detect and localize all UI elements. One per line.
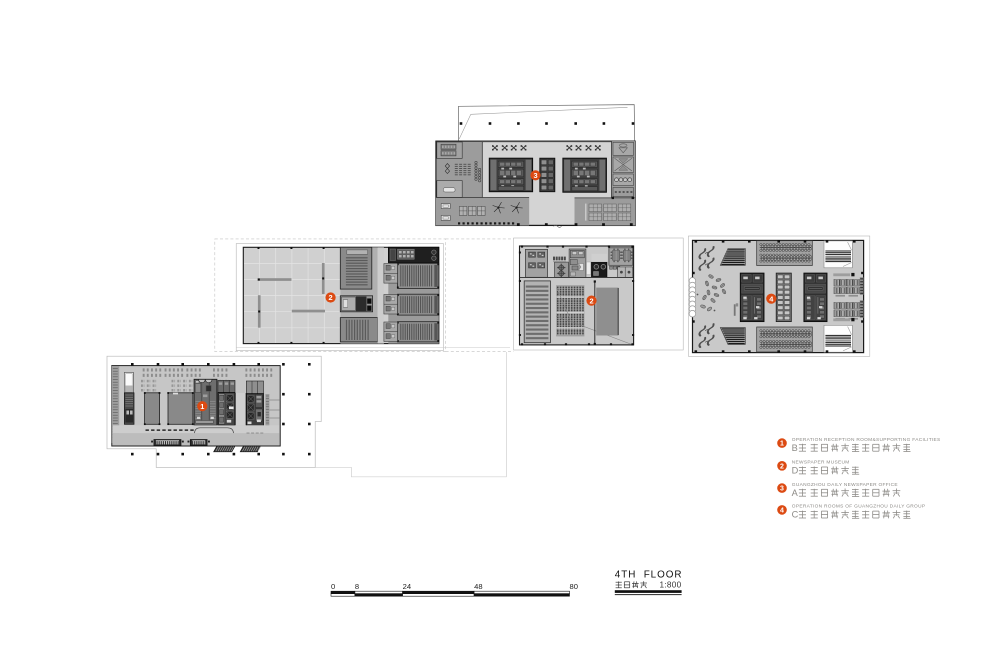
svg-text:1: 1 <box>780 441 784 448</box>
svg-text:2: 2 <box>329 293 333 302</box>
svg-text:3: 3 <box>780 486 784 493</box>
svg-text:2: 2 <box>589 296 593 305</box>
svg-text:NEWSPAPER MUSEUM: NEWSPAPER MUSEUM <box>792 460 850 466</box>
svg-text:4TH FLOOR: 4TH FLOOR <box>615 569 683 580</box>
svg-text:2: 2 <box>780 463 784 470</box>
svg-text:8: 8 <box>355 582 359 591</box>
svg-text:D: D <box>792 466 799 476</box>
svg-text:3: 3 <box>533 171 537 180</box>
svg-text:1: 1 <box>200 402 204 411</box>
svg-text:1:800: 1:800 <box>660 581 682 590</box>
svg-text:80: 80 <box>570 582 578 591</box>
svg-text:4: 4 <box>780 507 784 514</box>
svg-text:A: A <box>792 488 799 498</box>
svg-text:24: 24 <box>403 582 411 591</box>
svg-text:0: 0 <box>331 582 335 591</box>
svg-text:48: 48 <box>474 582 482 591</box>
svg-text:B: B <box>792 443 798 453</box>
svg-text:OPERATION RECEPTION ROOM&SUPPO: OPERATION RECEPTION ROOM&SUPPORTING FACI… <box>792 437 941 443</box>
svg-text:OPERATION ROOMS OF GUANGZHOU D: OPERATION ROOMS OF GUANGZHOU DAILY GROUP <box>792 504 926 510</box>
svg-text:GUANGZHOU DAILY NEWSPAPER OFFI: GUANGZHOU DAILY NEWSPAPER OFFICE <box>792 482 898 488</box>
svg-text:C: C <box>792 510 799 520</box>
